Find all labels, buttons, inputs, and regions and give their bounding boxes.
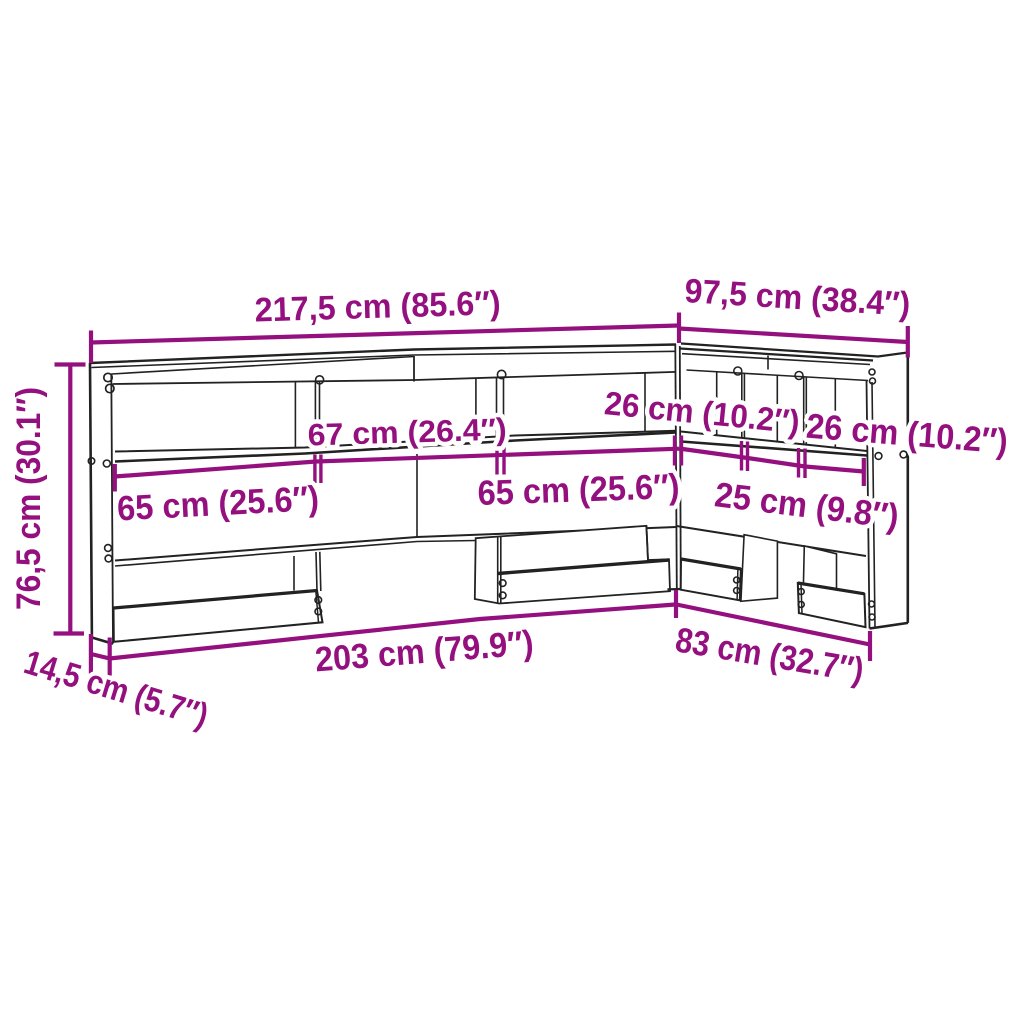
- svg-text:217,5 cm (85.6″): 217,5 cm (85.6″): [254, 284, 501, 329]
- svg-text:67 cm (26.4″): 67 cm (26.4″): [307, 412, 507, 453]
- svg-text:76,5 cm (30.1″): 76,5 cm (30.1″): [10, 387, 48, 610]
- svg-text:65 cm (25.6″): 65 cm (25.6″): [477, 467, 680, 513]
